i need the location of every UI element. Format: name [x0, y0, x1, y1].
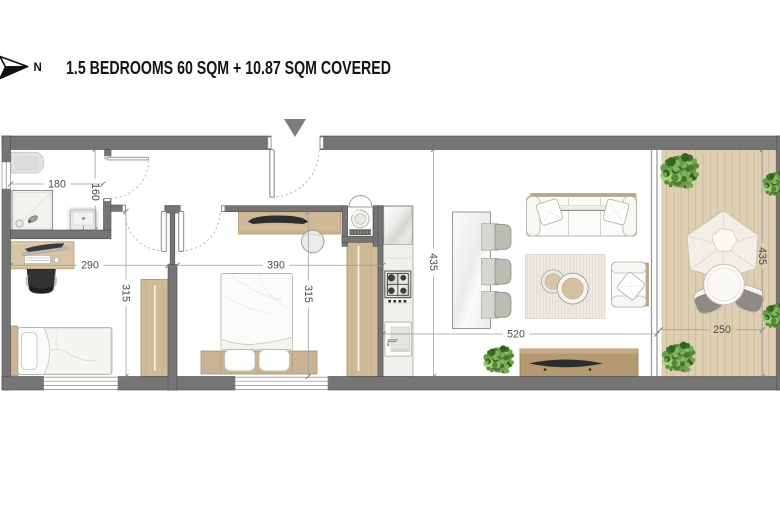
svg-text:160: 160 — [89, 183, 101, 201]
svg-text:520: 520 — [507, 328, 525, 340]
svg-text:315: 315 — [302, 285, 314, 303]
svg-text:N: N — [34, 62, 42, 74]
svg-text:315: 315 — [120, 284, 132, 302]
svg-text:250: 250 — [713, 324, 731, 336]
svg-text:180: 180 — [48, 178, 66, 190]
svg-text:435: 435 — [756, 247, 768, 265]
svg-text:435: 435 — [427, 253, 439, 271]
svg-text:1.5 BEDROOMS 60 SQM + 10.87 SQ: 1.5 BEDROOMS 60 SQM + 10.87 SQM COVERED — [66, 58, 391, 78]
svg-text:390: 390 — [267, 260, 285, 272]
svg-text:290: 290 — [81, 260, 99, 272]
